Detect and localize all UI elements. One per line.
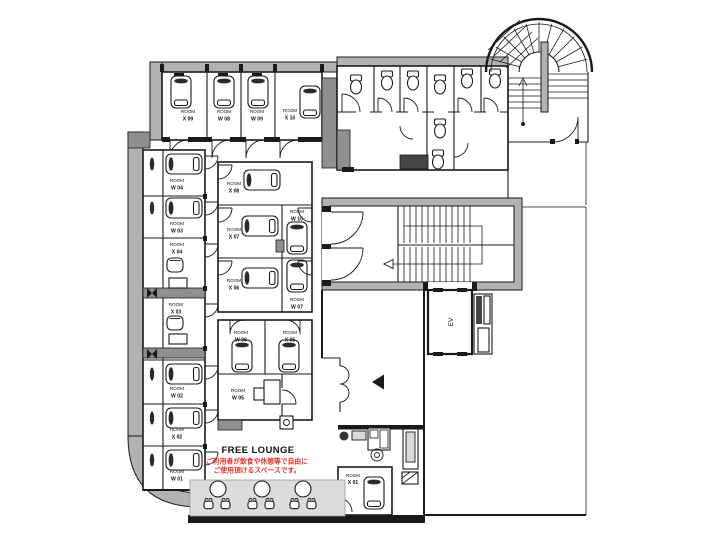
room-label-id: W 10 xyxy=(291,217,303,223)
room-label-prefix: ROOM xyxy=(346,473,360,478)
room-x07: ROOMX 07 xyxy=(227,227,241,241)
elevator: EV xyxy=(424,288,492,358)
kitchen-unit xyxy=(368,428,390,450)
wall-pocket xyxy=(276,240,284,252)
table xyxy=(169,278,187,288)
room-label-prefix: ROOM xyxy=(217,109,231,114)
room-w03: ROOMW 03 xyxy=(170,221,184,235)
room-w04: ROOMW 04 xyxy=(170,178,184,192)
room-x10: ROOM X 10 xyxy=(283,108,297,122)
room-label-prefix: ROOM xyxy=(170,386,184,391)
room-x03: ROOMX 03 xyxy=(169,302,183,316)
toilet-icon xyxy=(462,69,473,88)
room-x08: ROOMX 08 xyxy=(227,181,241,195)
toilet-icon xyxy=(351,75,362,94)
room-label-prefix: ROOM xyxy=(290,297,304,302)
room-label-prefix: ROOM xyxy=(283,330,297,335)
bed-icon xyxy=(166,154,202,174)
rooms-lower-center: ROOMW 06 ROOMX 05 ROOMW 05 xyxy=(218,320,312,430)
bed-icon xyxy=(279,340,299,372)
room-label-prefix: ROOM xyxy=(170,469,184,474)
bed-icon xyxy=(242,268,278,288)
lounge-table xyxy=(254,481,270,497)
bed-icon xyxy=(242,216,278,236)
room-w06: ROOMW 06 xyxy=(234,330,248,344)
bed-icon xyxy=(171,76,191,108)
room-label-id: W 07 xyxy=(291,305,303,311)
stove-icon xyxy=(340,432,349,441)
room-label-id: X 09 xyxy=(183,117,194,123)
room-w02: ROOMW 02 xyxy=(170,386,184,400)
bed-icon xyxy=(214,76,234,108)
toilet-icon xyxy=(435,119,446,138)
chair-icon xyxy=(167,258,183,272)
room-label-prefix: ROOM xyxy=(227,227,241,232)
bed-icon xyxy=(287,260,307,292)
room-w01: ROOMW 01 xyxy=(170,469,184,483)
room-label-id: X 08 xyxy=(229,189,240,195)
toilet-icon xyxy=(433,150,444,169)
bed-icon xyxy=(300,86,320,118)
room-x06: ROOMX 06 xyxy=(227,278,241,292)
room-w10: ROOMW 10 xyxy=(290,209,304,223)
room-label-prefix: ROOM xyxy=(170,178,184,183)
lounge-note-line1: ご利用者が飲食や休憩等で自由に xyxy=(206,457,308,466)
bed-icon xyxy=(166,198,202,218)
room-w08: ROOM W 08 xyxy=(217,109,231,123)
toilet-icon xyxy=(382,71,393,90)
room-x02: ROOMX 02 xyxy=(170,427,184,441)
room-label-id: X 01 xyxy=(348,480,359,486)
lounge-note-line2: ご使用頂けるスペースです。 xyxy=(214,466,301,475)
room-label-prefix: ROOM xyxy=(181,109,195,114)
room-label-id: W 04 xyxy=(171,186,183,192)
room-label-prefix: ROOM xyxy=(169,302,183,307)
room-label-id: X 05 xyxy=(285,338,296,344)
room-x05: ROOMX 05 xyxy=(283,330,297,344)
desk xyxy=(264,380,280,404)
room-label-id: W 06 xyxy=(235,338,247,344)
room-label-prefix: ROOM xyxy=(234,330,248,335)
counter xyxy=(352,431,366,440)
room-label-prefix: ROOM xyxy=(170,242,184,247)
room-label-prefix: ROOM xyxy=(227,181,241,186)
wall-pocket xyxy=(337,130,350,170)
room-label-prefix: ROOM xyxy=(227,278,241,283)
elevator-label: EV xyxy=(448,317,455,326)
room-label-id: X 02 xyxy=(172,435,183,441)
room-w09: ROOM W 09 xyxy=(250,109,264,123)
wall-pocket xyxy=(322,78,337,168)
rooms-center-block: ROOMX 08 ROOMX 07 ROOMX 06 ROOMW 10 ROOM… xyxy=(218,162,312,312)
wall-pocket xyxy=(218,420,242,430)
bed-icon xyxy=(287,222,307,254)
bed-icon xyxy=(232,340,252,372)
column xyxy=(280,416,293,429)
chair xyxy=(254,388,264,400)
room-label-prefix: ROOM xyxy=(170,427,184,432)
room-x09: ROOM X 09 xyxy=(181,109,195,123)
lounge-title: FREE LOUNGE xyxy=(221,445,294,456)
lounge-table xyxy=(210,481,226,497)
bed-icon xyxy=(166,450,202,470)
room-label-id: X 06 xyxy=(229,286,240,292)
bed-icon xyxy=(166,408,202,428)
room-label-id: W 08 xyxy=(218,117,230,123)
room-label-id: W 05 xyxy=(232,396,244,402)
chair-icon xyxy=(167,316,183,330)
bed-icon xyxy=(364,477,384,509)
restrooms xyxy=(337,57,508,172)
bed-icon xyxy=(248,76,268,108)
room-label-prefix: ROOM xyxy=(283,108,297,113)
bed-icon xyxy=(244,170,280,190)
room-label-id: X 04 xyxy=(172,250,183,256)
room-label-id: W 02 xyxy=(171,394,183,400)
room-w07: ROOMW 07 xyxy=(290,297,304,311)
room-label-id: X 03 xyxy=(171,310,182,316)
elevator-shaft xyxy=(474,294,492,354)
room-w05: ROOMW 05 xyxy=(231,388,245,402)
room-label-prefix: ROOM xyxy=(170,221,184,226)
room-label-prefix: ROOM xyxy=(250,109,264,114)
floor-plan: ROOM X 09 ROOM W 08 ROOM W 09 ROOM X 10 xyxy=(0,0,725,535)
room-label-id: X 10 xyxy=(285,116,296,122)
room-x01: ROOM X 01 xyxy=(338,467,392,515)
table xyxy=(169,334,187,344)
room-x04: ROOMX 04 xyxy=(170,242,184,256)
room-label-id: W 09 xyxy=(251,117,263,123)
central-staircase xyxy=(322,198,522,291)
sink-counter xyxy=(400,155,428,169)
toilet-icon xyxy=(408,71,419,90)
bed-icon xyxy=(166,364,202,384)
room-label-prefix: ROOM xyxy=(231,388,245,393)
room-label-prefix: ROOM xyxy=(290,209,304,214)
room-label-id: X 07 xyxy=(229,235,240,241)
room-label-id: W 03 xyxy=(171,229,183,235)
room-label-id: W 01 xyxy=(171,477,183,483)
lounge-table xyxy=(295,481,311,497)
toilet-icon xyxy=(435,75,446,94)
